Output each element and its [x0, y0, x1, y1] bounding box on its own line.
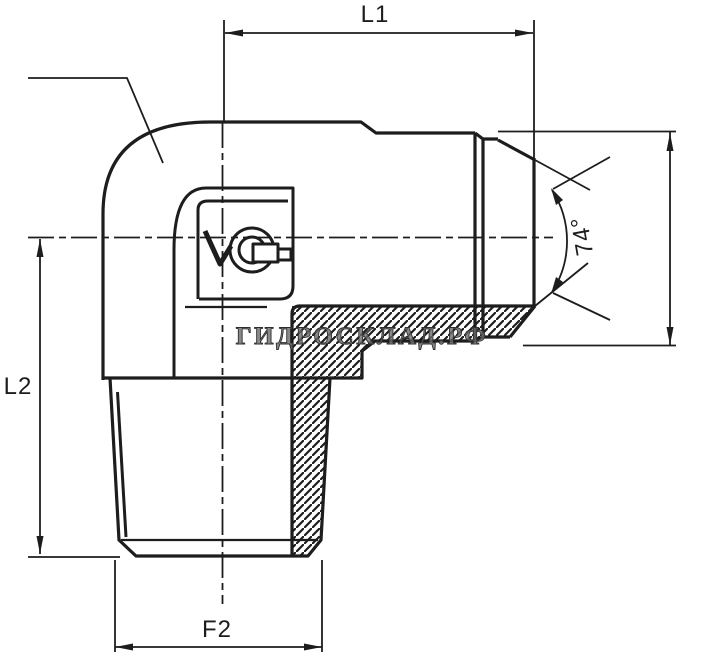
flare-angle-annotation: 74°: [535, 157, 610, 320]
leader-line: [28, 78, 163, 163]
dimension-label-l1: L1: [361, 1, 390, 28]
watermark-text: ГИДРОСКЛАД.РФ: [236, 323, 489, 350]
dimension-label-f2: F2: [202, 616, 232, 643]
dimension-label-l2: L2: [4, 373, 33, 400]
flare-angle-label: 74°: [566, 214, 599, 257]
dimension-f2: F2: [115, 560, 322, 652]
angle-arc: [552, 190, 567, 292]
drill-point-mark: [205, 231, 231, 264]
engineering-drawing: L1 L2 F2 74° ГИДРОСКЛАД.РФ: [0, 0, 721, 670]
